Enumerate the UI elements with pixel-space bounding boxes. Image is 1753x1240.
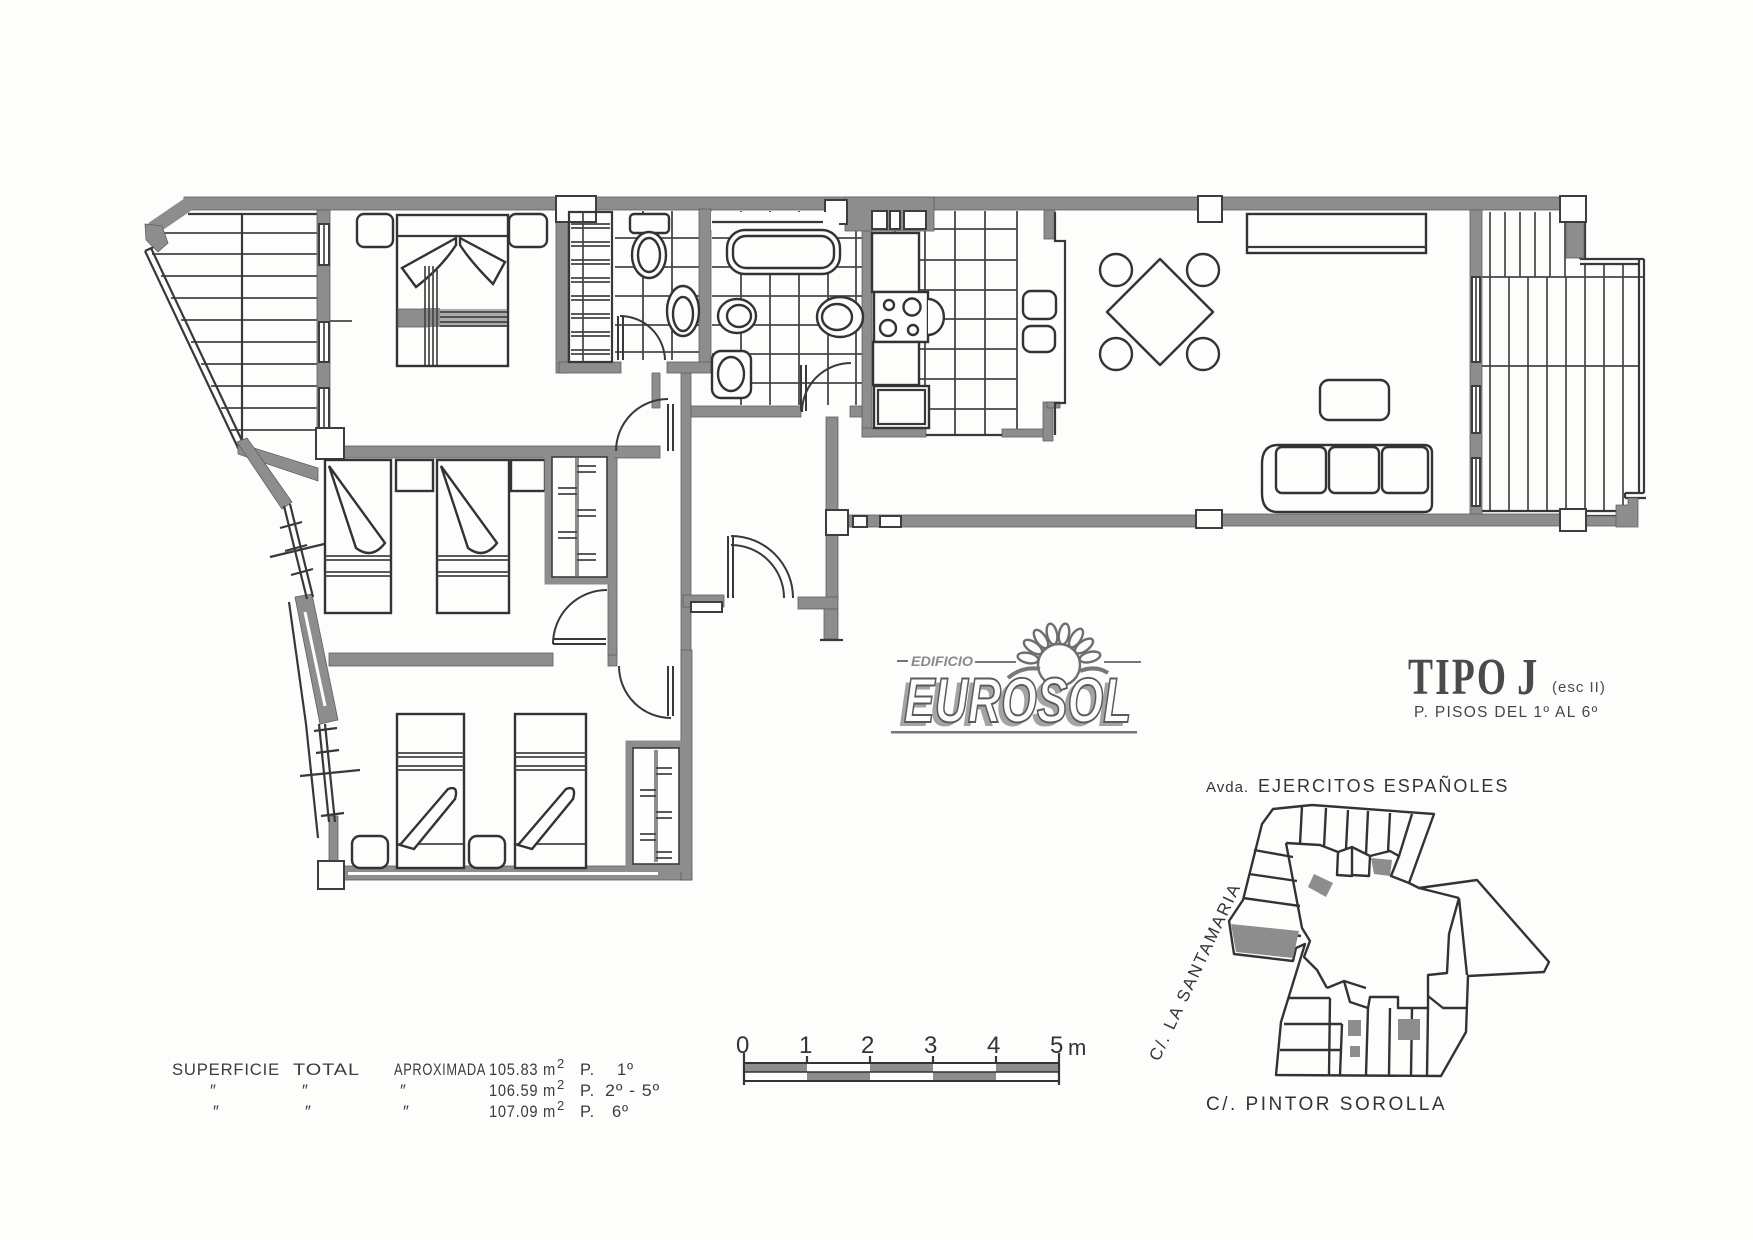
svg-text:″: ″ xyxy=(403,1103,410,1121)
svg-text:1: 1 xyxy=(799,1032,812,1059)
svg-text:2: 2 xyxy=(557,1077,565,1092)
svg-text:″: ″ xyxy=(213,1103,220,1121)
svg-text:4: 4 xyxy=(987,1032,1000,1059)
svg-text:3: 3 xyxy=(924,1032,937,1059)
svg-text:″: ″ xyxy=(210,1082,217,1100)
svg-text:APROXIMADA: APROXIMADA xyxy=(394,1061,486,1079)
svg-text:SUPERFICIE: SUPERFICIE xyxy=(172,1061,280,1079)
svg-text:J: J xyxy=(1517,648,1537,706)
svg-text:(esc II): (esc II) xyxy=(1552,679,1606,696)
svg-text:P.: P. xyxy=(580,1061,595,1079)
svg-text:106.59 m: 106.59 m xyxy=(489,1082,556,1100)
svg-text:Avda.: Avda. xyxy=(1206,779,1249,796)
svg-text:″: ″ xyxy=(302,1082,309,1100)
svg-text:6º: 6º xyxy=(612,1103,629,1121)
svg-text:EUROSOL: EUROSOL xyxy=(904,665,1131,736)
svg-text:2: 2 xyxy=(557,1056,565,1071)
svg-text:″: ″ xyxy=(305,1103,312,1121)
svg-text:105.83 m: 105.83 m xyxy=(489,1061,556,1079)
svg-text:2: 2 xyxy=(557,1098,565,1113)
svg-text:2: 2 xyxy=(861,1032,874,1059)
svg-text:EJERCITOS ESPAÑOLES: EJERCITOS ESPAÑOLES xyxy=(1258,775,1509,796)
svg-text:P.: P. xyxy=(580,1103,595,1121)
svg-text:″: ″ xyxy=(400,1082,407,1100)
svg-text:2º - 5º: 2º - 5º xyxy=(605,1082,660,1100)
svg-text:1º: 1º xyxy=(617,1061,634,1079)
svg-text:m: m xyxy=(1068,1035,1086,1060)
svg-text:TIPO: TIPO xyxy=(1408,648,1508,705)
svg-text:0: 0 xyxy=(736,1032,749,1059)
svg-text:5: 5 xyxy=(1050,1032,1063,1059)
svg-text:P. PISOS DEL 1º AL 6º: P. PISOS DEL 1º AL 6º xyxy=(1414,704,1599,721)
svg-text:C/. PINTOR SOROLLA: C/. PINTOR SOROLLA xyxy=(1206,1094,1447,1115)
svg-text:107.09 m: 107.09 m xyxy=(489,1103,556,1121)
svg-text:TOTAL: TOTAL xyxy=(293,1061,360,1079)
svg-text:P.: P. xyxy=(580,1082,595,1100)
